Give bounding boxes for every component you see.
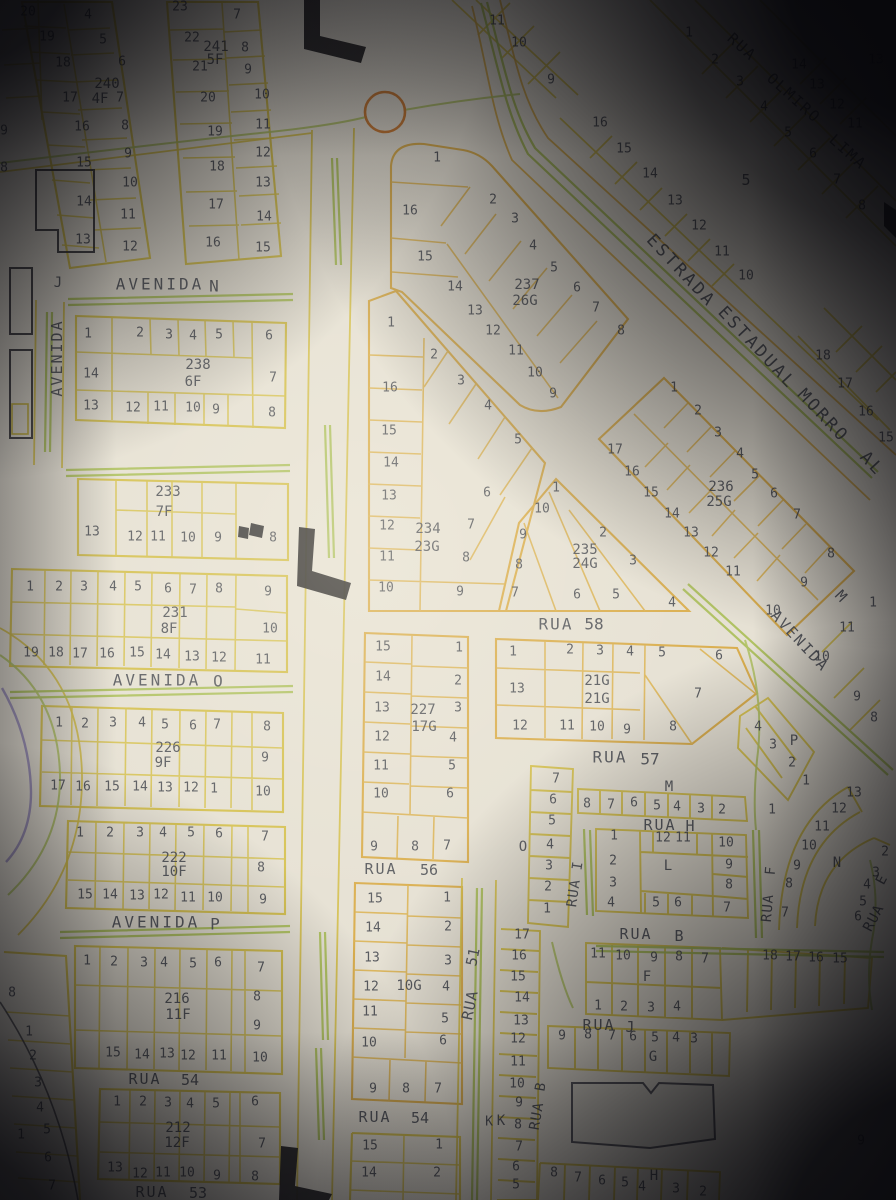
map-label: 10 (252, 1051, 268, 1066)
map-label: 4 (607, 896, 615, 911)
map-label: 17 (62, 91, 78, 106)
map-label: 238 (185, 357, 210, 373)
map-label: 9 (800, 576, 808, 591)
map-label: 12 (122, 240, 138, 255)
map-label: 9 (0, 124, 8, 139)
map-label: 6F (185, 374, 202, 390)
map-label: 12 (363, 980, 379, 995)
map-label: O (213, 672, 223, 691)
map-label: 10 (511, 36, 527, 51)
map-label: 12 (132, 1167, 148, 1182)
map-label: 1 (802, 774, 810, 789)
map-label: 8 (617, 324, 625, 339)
map-label: 5 (658, 646, 666, 661)
map-label: 6 (598, 1174, 606, 1189)
map-label: 4 (159, 826, 167, 841)
map-label: 15 (832, 952, 848, 967)
map-label: LIMA (826, 131, 871, 174)
map-label: 54 (181, 1071, 199, 1089)
map-label: 1 (55, 716, 63, 731)
map-label: 10 (361, 1036, 377, 1051)
map-label: 4 (449, 731, 457, 746)
map-label: 14 (642, 167, 658, 182)
map-label: 9 (519, 528, 527, 543)
map-label: 26G (512, 293, 537, 309)
map-label: 10 (615, 949, 631, 964)
map-label: 1 (26, 580, 34, 595)
map-label: 15 (878, 431, 894, 446)
map-label: 9 (857, 1134, 865, 1149)
map-label: 8 (669, 720, 677, 735)
map-label: 5 (215, 328, 223, 343)
map-label: 6 (629, 1030, 637, 1045)
map-label: 212 (165, 1120, 190, 1136)
map-label: N (209, 277, 219, 296)
map-label: 13 (83, 399, 99, 414)
map-label: 1 (552, 481, 560, 496)
map-label: E (873, 873, 891, 888)
map-label: 7 (723, 901, 731, 916)
map-label: 15 (510, 970, 526, 985)
map-label: 7 (511, 586, 519, 601)
map-label: 19 (39, 30, 55, 45)
map-label: 5 (512, 1178, 520, 1193)
map-label: 15 (367, 892, 383, 907)
map-label: 15 (129, 646, 145, 661)
map-label: 5 (859, 895, 867, 910)
map-label: 15 (616, 142, 632, 157)
map-label: 6 (770, 487, 778, 502)
map-label: 5 (441, 1012, 449, 1027)
map-label: 10 (207, 891, 223, 906)
map-label: RUA (358, 1108, 391, 1126)
map-label: 12 (180, 1049, 196, 1064)
map-label: 8 (121, 119, 129, 134)
map-label: 6 (446, 787, 454, 802)
map-label: 14 (365, 921, 381, 936)
map-label: 4 (546, 838, 554, 853)
map-label: 4 (138, 716, 146, 731)
map-label: 3 (165, 328, 173, 343)
map-label: 2 (544, 880, 552, 895)
map-label: 17 (72, 647, 88, 662)
map-label: 15 (255, 241, 271, 256)
map-label: 14 (791, 58, 807, 73)
map-label: 9F (155, 755, 172, 771)
map-label: 2 (566, 643, 574, 658)
map-label: 9 (214, 531, 222, 546)
map-photo: 204195186240174F716815910141113122372224… (0, 0, 896, 1200)
map-label: 8 (858, 199, 866, 214)
map-label: 10 (373, 787, 389, 802)
map-label: 8 (725, 878, 733, 893)
map-label: 13 (374, 701, 390, 716)
map-label: 3 (545, 859, 553, 874)
map-label: 2 (430, 348, 438, 363)
map-label: 3 (511, 212, 519, 227)
map-label: 7 (261, 830, 269, 845)
map-label: 11 (153, 400, 169, 415)
map-label: AVENIDA (116, 275, 204, 294)
map-label: 5 (514, 433, 522, 448)
map-label: 3 (609, 876, 617, 891)
map-label: 6 (573, 588, 581, 603)
map-label: 5 (612, 588, 620, 603)
map-label: RUA (619, 925, 652, 943)
map-label: 3 (629, 554, 637, 569)
map-label: 3 (596, 644, 604, 659)
map-label: I (569, 861, 586, 872)
map-label: 2 (620, 1000, 628, 1015)
map-label: 9 (650, 951, 658, 966)
map-label: 4 (186, 1097, 194, 1112)
map-label: 10 (254, 88, 270, 103)
map-label: 21G (584, 673, 609, 689)
map-label: 2 (106, 826, 114, 841)
map-label: 6 (674, 896, 682, 911)
map-label: 12 (510, 1032, 526, 1047)
map-label: 3 (80, 580, 88, 595)
map-label: RUA (724, 29, 761, 65)
map-label: 12 (153, 888, 169, 903)
map-label: 12 (211, 651, 227, 666)
map-label: 8 (584, 1028, 592, 1043)
map-label: 10 (589, 720, 605, 735)
map-label: 10 (814, 650, 830, 665)
map-labels-layer: 204195186240174F716815910141113122372224… (0, 0, 896, 1200)
map-label: 10 (378, 581, 394, 596)
map-label: 9 (213, 1169, 221, 1184)
map-label: 11 (180, 891, 196, 906)
map-label: 14 (132, 780, 148, 795)
map-label: 5 (134, 580, 142, 595)
map-label: 7 (833, 173, 841, 188)
map-label: 9 (725, 858, 733, 873)
map-label: 13 (159, 1047, 175, 1062)
map-label: 11 (379, 550, 395, 565)
map-label: 12 (655, 831, 671, 846)
map-label: 5 (751, 468, 759, 483)
map-label: 11 (150, 530, 166, 545)
map-label: 8 (462, 551, 470, 566)
map-label: 9 (853, 690, 861, 705)
map-label: 226 (155, 740, 180, 756)
map-label: J (54, 275, 62, 291)
map-label: 11 (675, 831, 691, 846)
map-label: 16 (624, 465, 640, 480)
map-label: 12 (125, 401, 141, 416)
map-label: 10G (396, 978, 421, 994)
map-label: 16 (592, 116, 608, 131)
map-label: 1 (113, 1095, 121, 1110)
map-label: 2 (609, 854, 617, 869)
map-label: P (790, 733, 798, 749)
map-label: 6 (118, 55, 126, 70)
map-label: 12 (703, 546, 719, 561)
map-label: 11 (489, 14, 505, 29)
map-label: 6 (715, 649, 723, 664)
map-label: 3 (457, 374, 465, 389)
map-label: 4 (84, 8, 92, 23)
map-label: 3 (164, 1096, 172, 1111)
map-label: 4 (109, 580, 117, 595)
map-label: 7 (607, 798, 615, 813)
map-label: 18 (209, 160, 225, 175)
map-label: 1 (685, 26, 693, 41)
map-label: 8 (785, 877, 793, 892)
map-label: 15 (381, 424, 397, 439)
map-label: 8 (583, 797, 591, 812)
map-label: 18 (48, 646, 64, 661)
map-label: G (649, 1049, 657, 1065)
map-label: 14 (514, 991, 530, 1006)
map-label: 11 (155, 1166, 171, 1181)
map-label: 8 (263, 720, 271, 735)
map-label: 11 (362, 1005, 378, 1020)
map-label: 20 (200, 91, 216, 106)
map-label: 14 (83, 367, 99, 382)
map-label: 12 (127, 530, 143, 545)
map-label: 2 (881, 845, 889, 860)
map-label: 5 (651, 1031, 659, 1046)
map-label: 12F (164, 1135, 189, 1151)
map-label: 7 (233, 8, 241, 23)
map-label: 11 (847, 117, 863, 132)
map-label: 11 (839, 621, 855, 636)
map-label: RUA (364, 860, 397, 878)
map-label: 8 (402, 1082, 410, 1097)
map-label: 58 (584, 615, 603, 634)
map-label: 9 (253, 1019, 261, 1034)
map-label: 3 (769, 738, 777, 753)
map-label: 2 (81, 717, 89, 732)
map-label: AL (856, 447, 889, 480)
map-label: 234 (415, 521, 440, 537)
map-label: 10 (255, 785, 271, 800)
map-label: 3 (736, 75, 744, 90)
map-label: 6 (214, 956, 222, 971)
map-label: 7 (574, 1171, 582, 1186)
map-label: 6 (189, 719, 197, 734)
map-label: 5 (187, 826, 195, 841)
map-label: 1 (387, 316, 395, 331)
map-label: 7 (781, 906, 789, 921)
map-label: 17G (411, 719, 436, 735)
map-label: 14 (447, 280, 463, 295)
map-label: 5 (99, 33, 107, 48)
map-label: 6 (809, 147, 817, 162)
map-label: 11 (814, 820, 830, 835)
map-label: 11 (714, 245, 730, 260)
map-label: AVENIDA (113, 671, 201, 690)
map-label: 17 (50, 779, 66, 794)
map-label: 2 (718, 803, 726, 818)
map-label: 6 (164, 582, 172, 597)
map-label: 227 (410, 702, 435, 718)
map-label: 11 (373, 759, 389, 774)
map-label: 2 (711, 53, 719, 68)
map-label: 15 (76, 156, 92, 171)
map-label: 5F (207, 52, 224, 68)
map-label: 1 (443, 891, 451, 906)
map-label: 11 (255, 653, 271, 668)
map-label: 2 (694, 404, 702, 419)
map-label: 14 (664, 507, 680, 522)
map-label: 21G (584, 691, 609, 707)
map-label: 11 (508, 344, 524, 359)
map-label: 9 (549, 387, 557, 402)
map-label: 14 (361, 1166, 377, 1181)
map-label: 4 (484, 399, 492, 414)
map-label: 4 (673, 1000, 681, 1015)
map-label: 10 (801, 839, 817, 854)
map-label: 2 (454, 674, 462, 689)
map-label: 13 (467, 304, 483, 319)
map-label: 22 (184, 31, 200, 46)
map-label: 7 (467, 518, 475, 533)
map-label: 8 (251, 1170, 259, 1185)
map-label: 11 (255, 118, 271, 133)
map-label: 9 (515, 1096, 523, 1111)
map-label: 2 (788, 756, 796, 771)
map-label: 10 (185, 401, 201, 416)
map-label: 5 (212, 1097, 220, 1112)
map-label: 3 (444, 954, 452, 969)
map-label: 12 (183, 781, 199, 796)
map-label: 8 (515, 558, 523, 573)
map-label: 1 (17, 1128, 25, 1143)
map-label: RUA (539, 615, 574, 634)
map-label: 1 (84, 327, 92, 342)
map-label: 6 (251, 1095, 259, 1110)
map-label: 12 (512, 719, 528, 734)
map-label: 1 (869, 596, 877, 611)
map-label: 21 (192, 60, 208, 75)
map-label: 7 (434, 1082, 442, 1097)
map-label: 1 (455, 641, 463, 656)
map-label: 2 (699, 1185, 707, 1200)
map-label: 8 (8, 986, 16, 1001)
map-label: 17 (208, 198, 224, 213)
map-label: 1 (210, 782, 218, 797)
map-label: 7 (552, 772, 560, 787)
map-label: 51 (462, 946, 483, 967)
map-label: 2 (136, 326, 144, 341)
map-label: 23G (414, 539, 439, 555)
map-label: RUA (564, 878, 584, 908)
map-label: AVENIDA (48, 319, 66, 396)
map-label: 12 (831, 802, 847, 817)
map-label: 7 (793, 508, 801, 523)
map-label: 1 (25, 1025, 33, 1040)
map-label: 5 (653, 799, 661, 814)
map-label: 16 (74, 120, 90, 135)
map-label: 9 (264, 585, 272, 600)
map-label: L (664, 858, 672, 874)
map-label: 7 (701, 952, 709, 967)
map-label: 8 (827, 547, 835, 562)
map-label: 237 (514, 277, 539, 293)
map-label: N (833, 855, 841, 871)
map-label: 14 (256, 210, 272, 225)
map-label: 16 (382, 381, 398, 396)
map-label: 14 (76, 195, 92, 210)
map-label: 4 (672, 1031, 680, 1046)
map-label: 1 (670, 381, 678, 396)
map-label: 16 (511, 949, 527, 964)
map-label: RUA (527, 1101, 548, 1132)
map-label: 12 (829, 98, 845, 113)
map-label: RUA (759, 893, 777, 923)
map-label: 4 (736, 447, 744, 462)
map-label: 4 (189, 329, 197, 344)
map-label: 13 (129, 889, 145, 904)
map-label: 1 (543, 902, 551, 917)
map-label: K (485, 1115, 493, 1130)
map-label: 3 (109, 716, 117, 731)
map-label: 10 (534, 502, 550, 517)
map-label: M (831, 587, 850, 606)
map-label: 5 (652, 896, 660, 911)
map-label: 5 (448, 759, 456, 774)
map-label: 2 (139, 1095, 147, 1110)
map-label: 11 (510, 1055, 526, 1070)
map-label: 11F (165, 1007, 190, 1023)
map-label: 18 (55, 56, 71, 71)
map-label: 7 (443, 839, 451, 854)
map-label: 9 (370, 840, 378, 855)
map-label: 3 (697, 802, 705, 817)
map-label: 4 (442, 980, 450, 995)
map-label: 7 (257, 961, 265, 976)
map-label: 13 (381, 489, 397, 504)
map-label: 13 (107, 1161, 123, 1176)
map-label: ESTRADA (642, 230, 720, 311)
map-label: 5 (548, 814, 556, 829)
map-label: AVENIDA (112, 913, 200, 932)
map-label: B (674, 927, 683, 945)
map-label: 11 (590, 947, 606, 962)
map-label: RUA (458, 988, 482, 1021)
map-label: RUA (128, 1070, 161, 1088)
map-label: 12 (379, 519, 395, 534)
map-label: 13 (157, 781, 173, 796)
map-label: 4 (529, 239, 537, 254)
map-label: 23 (172, 0, 188, 15)
map-label: O (519, 839, 527, 855)
map-label: 12 (485, 324, 501, 339)
map-label: 4 (673, 800, 681, 815)
map-label: 1 (76, 826, 84, 841)
map-label: RUA (135, 1183, 168, 1200)
map-label: 10 (179, 1166, 195, 1181)
map-label: 20 (20, 5, 36, 20)
map-label: 216 (164, 991, 189, 1007)
map-label: 7 (269, 371, 277, 386)
map-label: 13 (75, 233, 91, 248)
map-label: 2 (110, 955, 118, 970)
map-label: 8 (870, 711, 878, 726)
map-label: M (665, 779, 673, 795)
map-label: 6 (549, 793, 557, 808)
map-label: 17 (514, 928, 530, 943)
map-label: 8 (411, 840, 419, 855)
map-label: 1 (433, 151, 441, 166)
map-label: 24G (572, 556, 597, 572)
map-label: 233 (155, 484, 180, 500)
map-label: 3 (136, 826, 144, 841)
map-label: B (532, 1081, 549, 1092)
